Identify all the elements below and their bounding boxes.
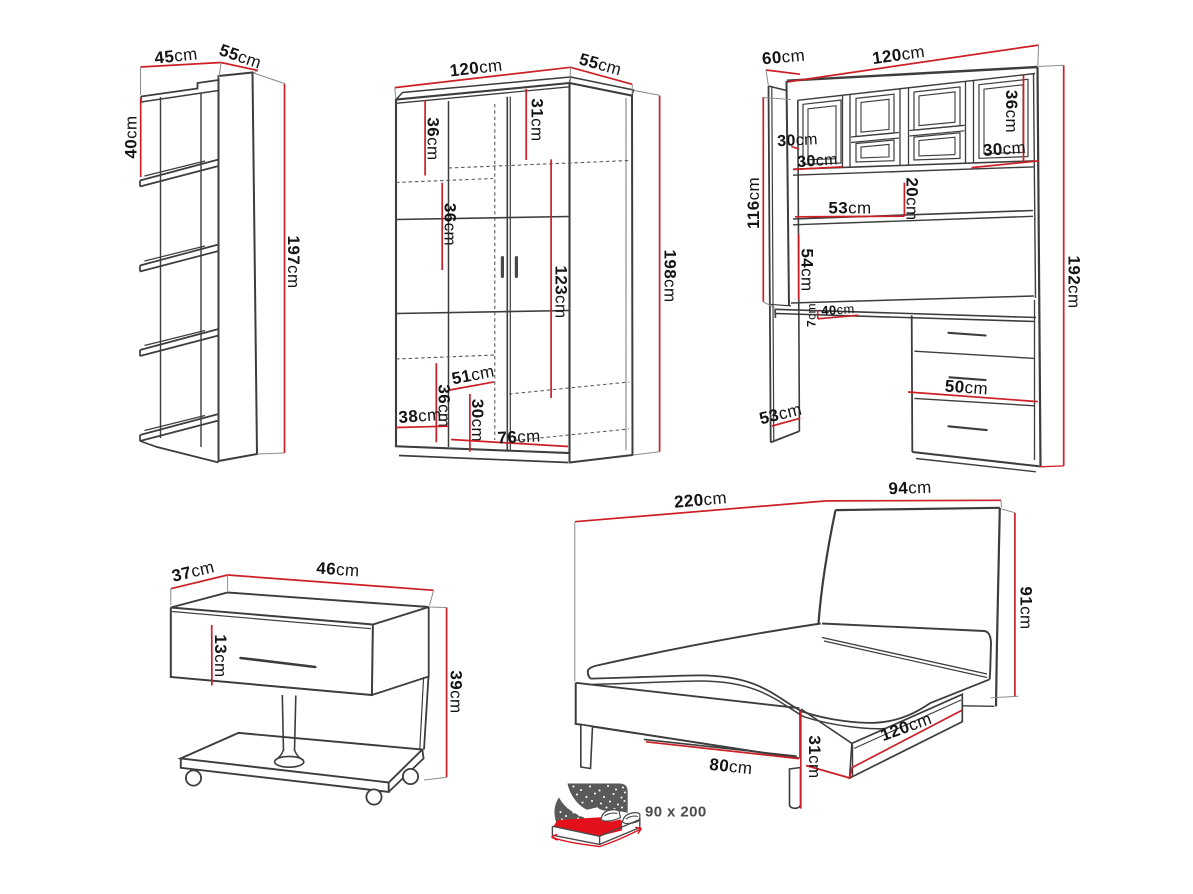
svg-text:91cm: 91cm <box>1017 586 1036 629</box>
svg-text:94cm: 94cm <box>888 478 932 498</box>
svg-text:39cm: 39cm <box>447 670 466 713</box>
svg-text:40cm: 40cm <box>122 115 141 158</box>
svg-text:31cm: 31cm <box>805 735 824 778</box>
svg-text:38cm: 38cm <box>398 405 442 427</box>
svg-text:20cm: 20cm <box>903 177 922 220</box>
svg-text:54cm: 54cm <box>798 248 817 291</box>
svg-text:7cm: 7cm <box>804 303 818 327</box>
svg-text:123cm: 123cm <box>552 265 571 318</box>
svg-text:50cm: 50cm <box>944 377 988 399</box>
svg-text:198cm: 198cm <box>661 249 680 302</box>
svg-text:90 x 200: 90 x 200 <box>645 804 707 821</box>
svg-text:76cm: 76cm <box>497 426 541 447</box>
svg-text:197cm: 197cm <box>284 235 303 288</box>
svg-text:192cm: 192cm <box>1065 255 1084 308</box>
svg-text:36cm: 36cm <box>424 117 443 160</box>
svg-text:116cm: 116cm <box>744 177 763 229</box>
svg-text:36cm: 36cm <box>1002 90 1021 133</box>
svg-text:36cm: 36cm <box>441 203 460 246</box>
svg-text:30cm: 30cm <box>468 399 487 442</box>
svg-text:30cm: 30cm <box>982 138 1026 160</box>
svg-text:31cm: 31cm <box>528 98 547 141</box>
svg-text:60cm: 60cm <box>761 46 806 69</box>
svg-text:53cm: 53cm <box>828 199 871 218</box>
svg-text:40cm: 40cm <box>821 301 855 318</box>
svg-text:46cm: 46cm <box>316 559 360 581</box>
svg-text:13cm: 13cm <box>211 634 230 677</box>
svg-text:30cm: 30cm <box>777 131 819 150</box>
svg-text:30cm: 30cm <box>797 151 839 171</box>
